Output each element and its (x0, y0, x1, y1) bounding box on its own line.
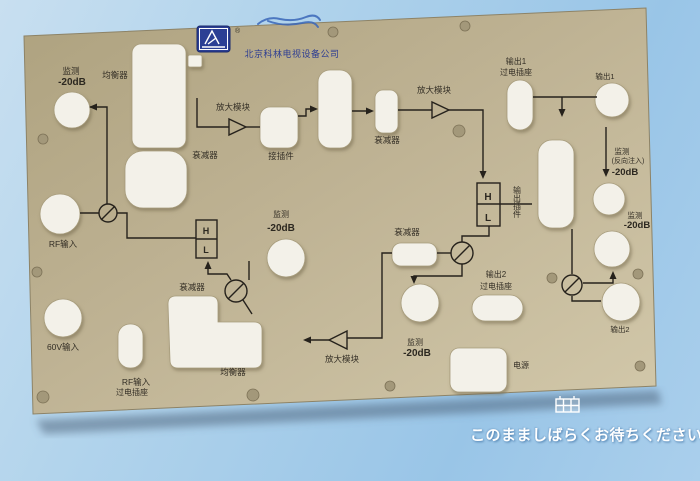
cutout-module-mid (318, 70, 352, 148)
label-level-topleft: -20dB (58, 77, 86, 88)
registered-mark: ® (235, 27, 241, 35)
grid-placeholder-icon (556, 396, 579, 412)
label-attenuator-4: 衰减器 (179, 282, 205, 292)
label-monitor-topleft: 监测 (62, 66, 79, 76)
label-monitor-right: 监测 (628, 210, 643, 220)
hole-rf-input (40, 194, 80, 234)
hole-output1 (595, 83, 629, 117)
cutout-attenuator-top (375, 90, 398, 133)
label-attenuator-2: 衰减器 (374, 135, 400, 145)
label-amp-module-3: 放大模块 (325, 354, 360, 364)
label-low-left: L (203, 245, 209, 255)
label-equalizer-bottom: 均衡器 (220, 367, 246, 377)
label-attenuator-3: 衰减器 (394, 227, 420, 237)
photo-viewer-stage: ® 北京科林电视设备公司 监测 -20dB 均衡器 放大模块 衰减器 接插件 衰… (0, 0, 700, 481)
cutout-slot-out2-socket (472, 295, 523, 321)
cutout-slot-rf-socket (118, 324, 143, 368)
hole-monitor-topleft (54, 92, 90, 128)
label-attenuator-1: 衰减器 (192, 150, 218, 160)
cutout-equalizer-top (132, 44, 186, 148)
label-connector: 接插件 (268, 151, 294, 161)
hole-monitor-bottom (401, 284, 439, 322)
cutout-attenuator-mid (392, 243, 437, 266)
label-high-left: H (203, 226, 210, 236)
label-rf-input-socket: RF输入 (122, 377, 151, 387)
cutout-oval (125, 151, 187, 208)
label-level-reverse: -20dB (612, 167, 639, 178)
label-reverse-inject: (反向注入) (612, 156, 645, 165)
label-equalizer-top: 均衡器 (102, 70, 128, 80)
hole-60v-input (44, 299, 82, 337)
label-60v-input: 60V输入 (47, 342, 80, 352)
label-output1: 输出1 (595, 71, 614, 81)
cutout-power (450, 348, 507, 392)
label-output1-socket: 输出1 (506, 56, 527, 66)
label-monitor-reverse: 监测 (615, 146, 630, 156)
label-feed-socket-2: 过电插座 (480, 281, 512, 291)
label-level-bottom: -20dB (403, 348, 431, 359)
label-low-right: L (485, 213, 491, 224)
label-feed-socket-1: 过电插座 (500, 67, 532, 77)
label-amp-module-2: 放大模块 (417, 85, 452, 95)
cutout-module-right (538, 140, 574, 228)
label-monitor-mid: 监测 (273, 209, 289, 219)
hole-output2 (602, 283, 640, 321)
label-high-right: H (484, 192, 491, 203)
wait-message: このまましばらくお待ちください。 (470, 424, 690, 445)
label-monitor-bottom: 监测 (407, 337, 423, 347)
label-output2: 输出2 (610, 324, 629, 334)
hole-monitor-right (594, 231, 630, 267)
label-power: 电源 (513, 360, 529, 370)
label-feed-socket-3: 过电插座 (116, 387, 148, 397)
label-output-module: 输出插件 (513, 185, 522, 219)
hole-monitor-mid (267, 239, 305, 277)
label-amp-module-1: 放大模块 (216, 102, 251, 112)
label-level-right: -20dB (624, 220, 651, 231)
cutout-slot-out1-socket (507, 80, 533, 130)
cutout-connector (260, 107, 298, 148)
hole-monitor-reverse (593, 183, 625, 215)
label-rf-input: RF输入 (49, 239, 78, 249)
label-level-mid: -20dB (267, 223, 295, 234)
company-name: 北京科林电视设备公司 (244, 48, 339, 59)
cutout-small-window (188, 55, 202, 67)
panel-photo: ® 北京科林电视设备公司 监测 -20dB 均衡器 放大模块 衰减器 接插件 衰… (0, 0, 700, 481)
label-output2-socket: 输出2 (486, 269, 507, 279)
